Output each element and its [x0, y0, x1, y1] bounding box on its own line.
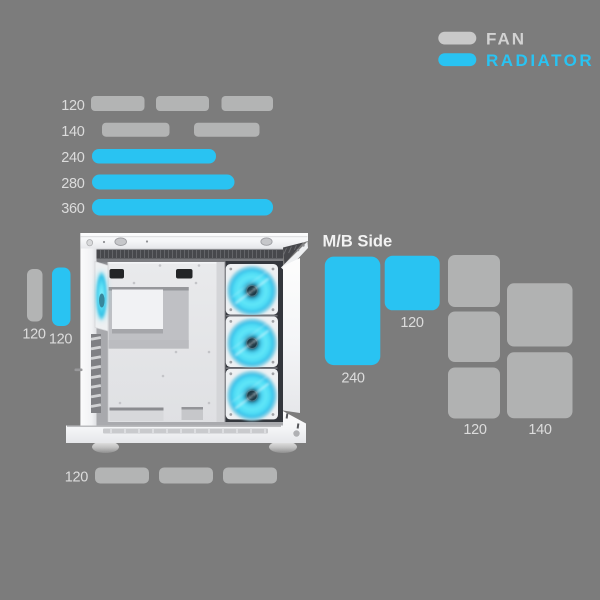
svg-text:120: 120: [22, 327, 46, 343]
svg-text:FAN: FAN: [486, 29, 526, 48]
svg-text:120: 120: [61, 98, 85, 114]
svg-text:280: 280: [61, 176, 85, 192]
svg-text:140: 140: [61, 124, 85, 140]
svg-text:120: 120: [49, 332, 73, 348]
svg-text:360: 360: [61, 201, 85, 217]
svg-text:120: 120: [463, 422, 487, 438]
svg-text:240: 240: [341, 371, 365, 387]
svg-text:RADIATOR: RADIATOR: [486, 51, 594, 70]
svg-text:M/B Side: M/B Side: [323, 233, 393, 251]
svg-text:120: 120: [65, 470, 89, 486]
svg-text:120: 120: [400, 315, 424, 331]
svg-text:140: 140: [528, 422, 552, 438]
svg-text:240: 240: [61, 150, 85, 166]
